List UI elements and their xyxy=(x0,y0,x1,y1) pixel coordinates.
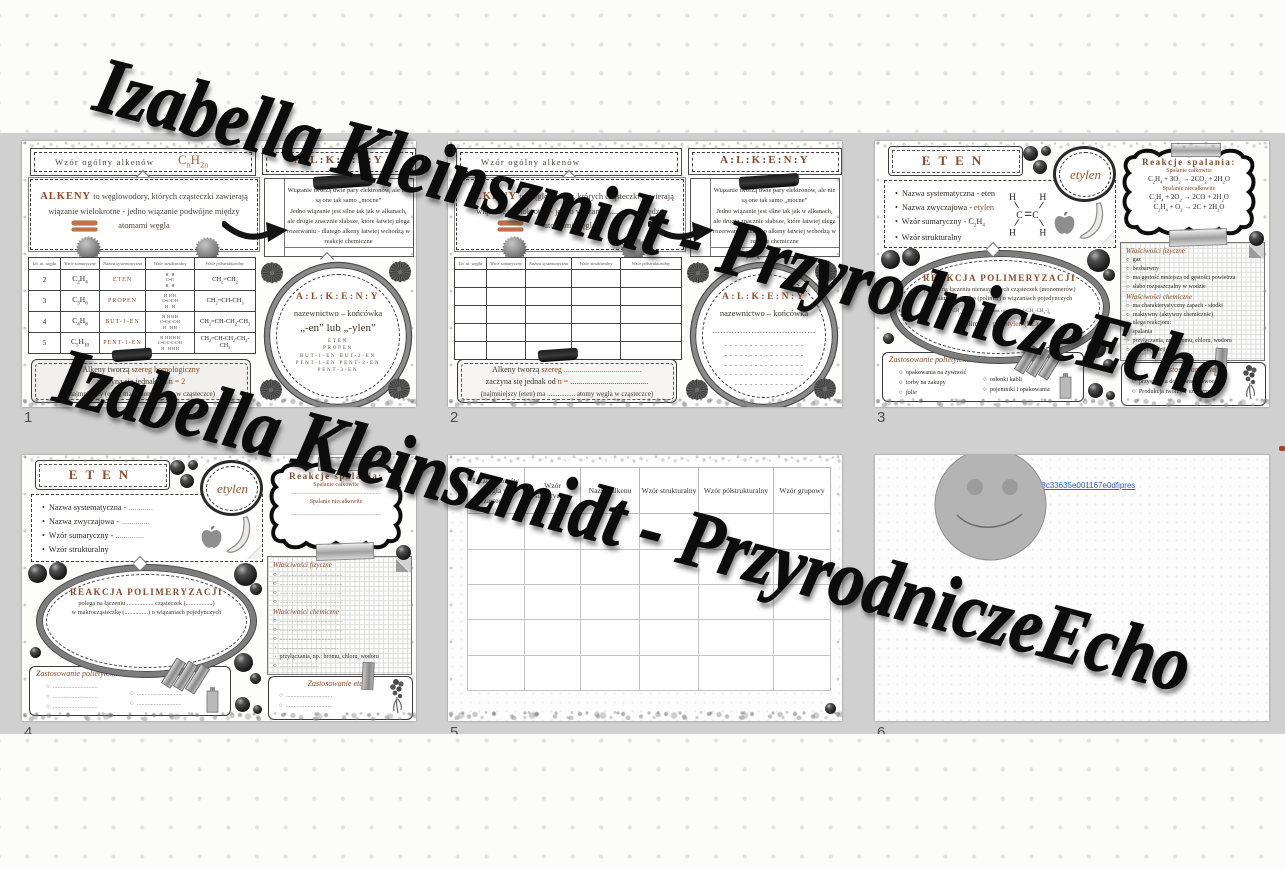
svg-text:H: H xyxy=(1009,227,1016,237)
svg-text:C: C xyxy=(1016,210,1022,221)
svg-text:H: H xyxy=(1009,192,1016,203)
svg-text:H: H xyxy=(1039,227,1046,237)
svg-text:C: C xyxy=(1032,210,1038,221)
svg-text:H: H xyxy=(1039,192,1046,203)
